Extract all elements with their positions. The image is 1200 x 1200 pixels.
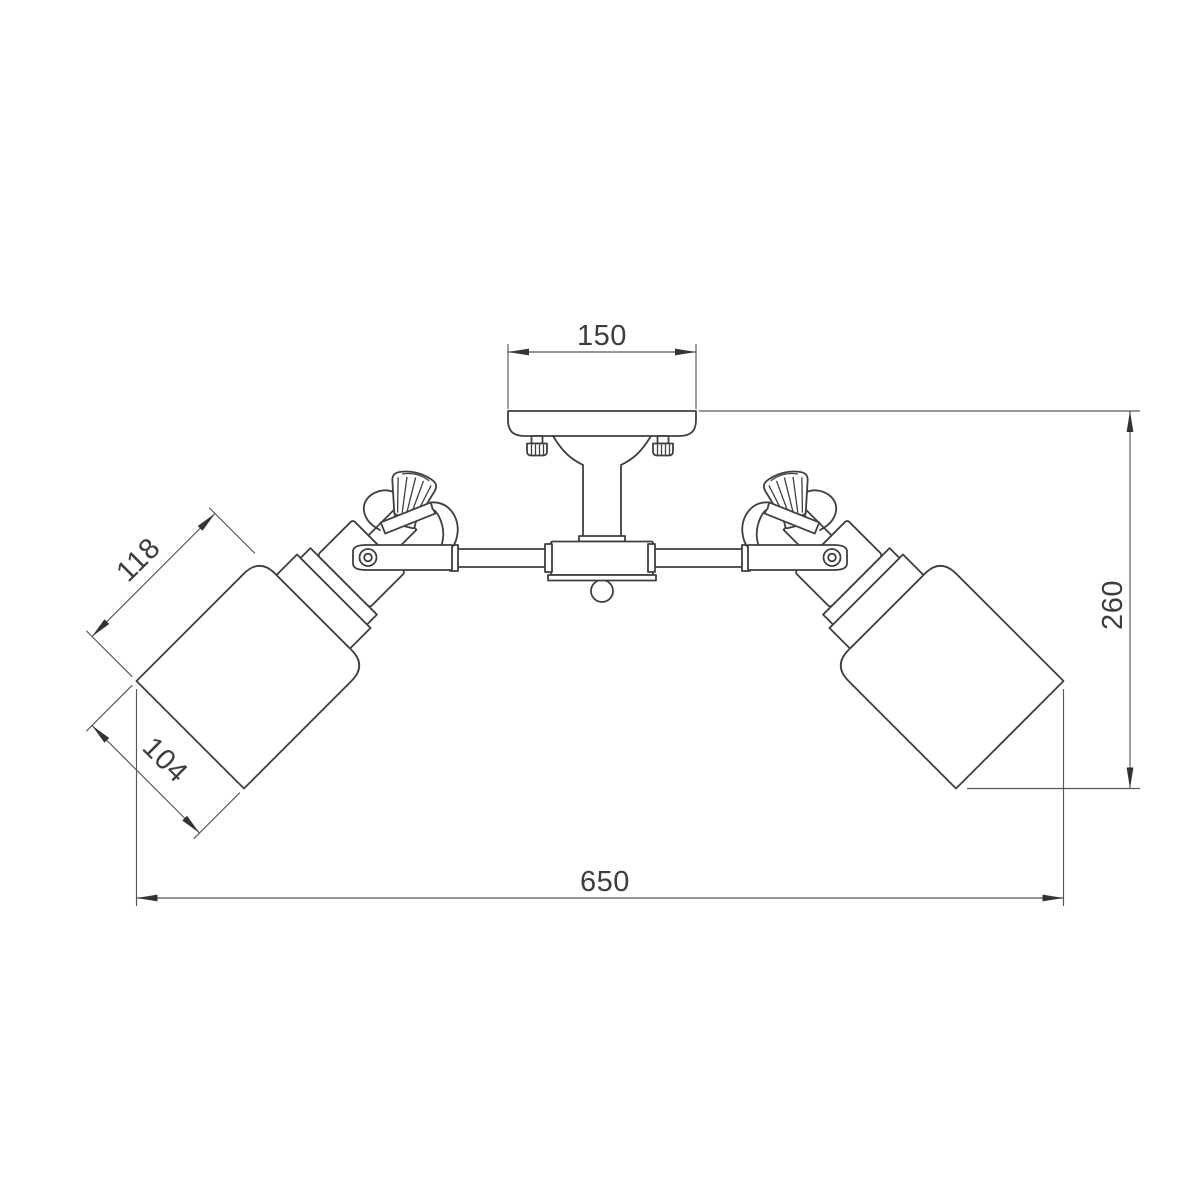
center-hub (551, 542, 653, 576)
finial-ball (591, 580, 613, 602)
arrowhead-down (1127, 768, 1134, 789)
arrowhead-left (508, 349, 529, 356)
dimension-canopy-width: 150 (508, 320, 696, 409)
pivot-screw (360, 549, 377, 566)
canopy-bell (553, 436, 651, 465)
thumbscrew-left (527, 436, 547, 456)
dimension-label-canopy-width: 150 (577, 320, 627, 352)
ceiling-canopy (508, 411, 696, 436)
arrowhead-lower (92, 619, 109, 636)
lamp-arm-assembly-left (136, 465, 552, 788)
thumbscrew-right (653, 436, 673, 456)
arrowhead-up (1127, 411, 1134, 432)
arrowhead-lower (182, 816, 199, 833)
dimension-label-shade-diameter: 104 (136, 731, 194, 789)
arm-tube (458, 549, 546, 567)
dimension-label-fixture-height: 260 (1097, 580, 1129, 630)
dimension-label-fixture-width: 650 (580, 866, 630, 898)
arrowhead-right (675, 349, 696, 356)
drawing-sheet: 150 260 650 118 104 (0, 0, 1200, 1200)
yoke-strap-loop (431, 502, 458, 547)
ceiling-canopy-assembly (508, 411, 696, 602)
fixture-dimension-drawing: 150 260 650 118 104 (0, 0, 1200, 1200)
hub-bottom-flange (548, 575, 656, 581)
arrowhead-right (1043, 895, 1064, 902)
center-stem (579, 465, 625, 542)
dimension-label-shade-height: 118 (110, 532, 166, 588)
arrowhead-left (137, 895, 158, 902)
arrowhead-upper (92, 726, 109, 743)
arrowhead-upper (198, 514, 215, 531)
arm-hub-collar (545, 544, 552, 572)
lamp-arm-assembly-right (648, 465, 1064, 788)
